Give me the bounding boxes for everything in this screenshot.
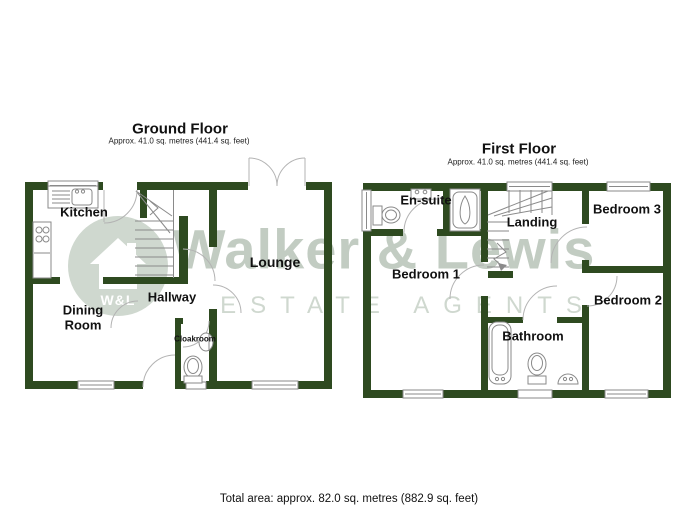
- room-label-lounge: Lounge: [250, 254, 301, 270]
- ground-floor-doors: [104, 158, 305, 387]
- room-label-bedroom1: Bedroom 1: [392, 267, 460, 282]
- front-door-arc: [143, 355, 175, 387]
- ensuite-toilet-cistern: [373, 206, 382, 225]
- first-floor-title: First Floor: [482, 141, 556, 158]
- bathroom-door-arc: [523, 286, 557, 320]
- bathroom-window: [518, 390, 552, 398]
- room-label-hallway: Hallway: [148, 290, 196, 305]
- french-door-left-arc: [249, 158, 277, 186]
- room-label-bedroom3: Bedroom 3: [593, 202, 661, 217]
- lounge-door-arc: [213, 285, 241, 313]
- room-label-bedroom2: Bedroom 2: [594, 293, 662, 308]
- kitchen-fixtures: [33, 186, 98, 278]
- first-floor-stairs: [487, 190, 552, 271]
- ground-floor-title: Ground Floor: [132, 121, 228, 138]
- room-label-ensuite: En-suite: [400, 193, 451, 208]
- room-label-dining: Dining Room: [55, 303, 111, 332]
- floorplan-page: W&L Walker & Lewis ESTATE AGENTS: [0, 0, 700, 509]
- ensuite-toilet-icon: [382, 207, 400, 223]
- total-area-note: Total area: approx. 82.0 sq. metres (882…: [220, 493, 478, 505]
- toilet-icon: [184, 356, 202, 378]
- bedroom3-door-arc: [551, 227, 587, 263]
- bathroom-toilet-icon: [528, 353, 546, 375]
- room-label-landing: Landing: [507, 215, 558, 230]
- ground-floor-area: Approx. 41.0 sq. metres (441.4 sq. feet): [109, 137, 250, 146]
- dining-door-arc: [111, 301, 138, 328]
- first-floor-area: Approx. 41.0 sq. metres (441.4 sq. feet): [448, 158, 589, 167]
- bathroom-basin-icon: [558, 374, 578, 384]
- kitchen-door-arc: [104, 190, 137, 223]
- room-label-kitchen: Kitchen: [60, 205, 108, 220]
- floorplan-drawing: [0, 0, 700, 509]
- room-label-cloakroom: Cloakroom: [174, 335, 216, 344]
- french-door-right-arc: [277, 158, 305, 186]
- room-label-bathroom: Bathroom: [502, 329, 563, 344]
